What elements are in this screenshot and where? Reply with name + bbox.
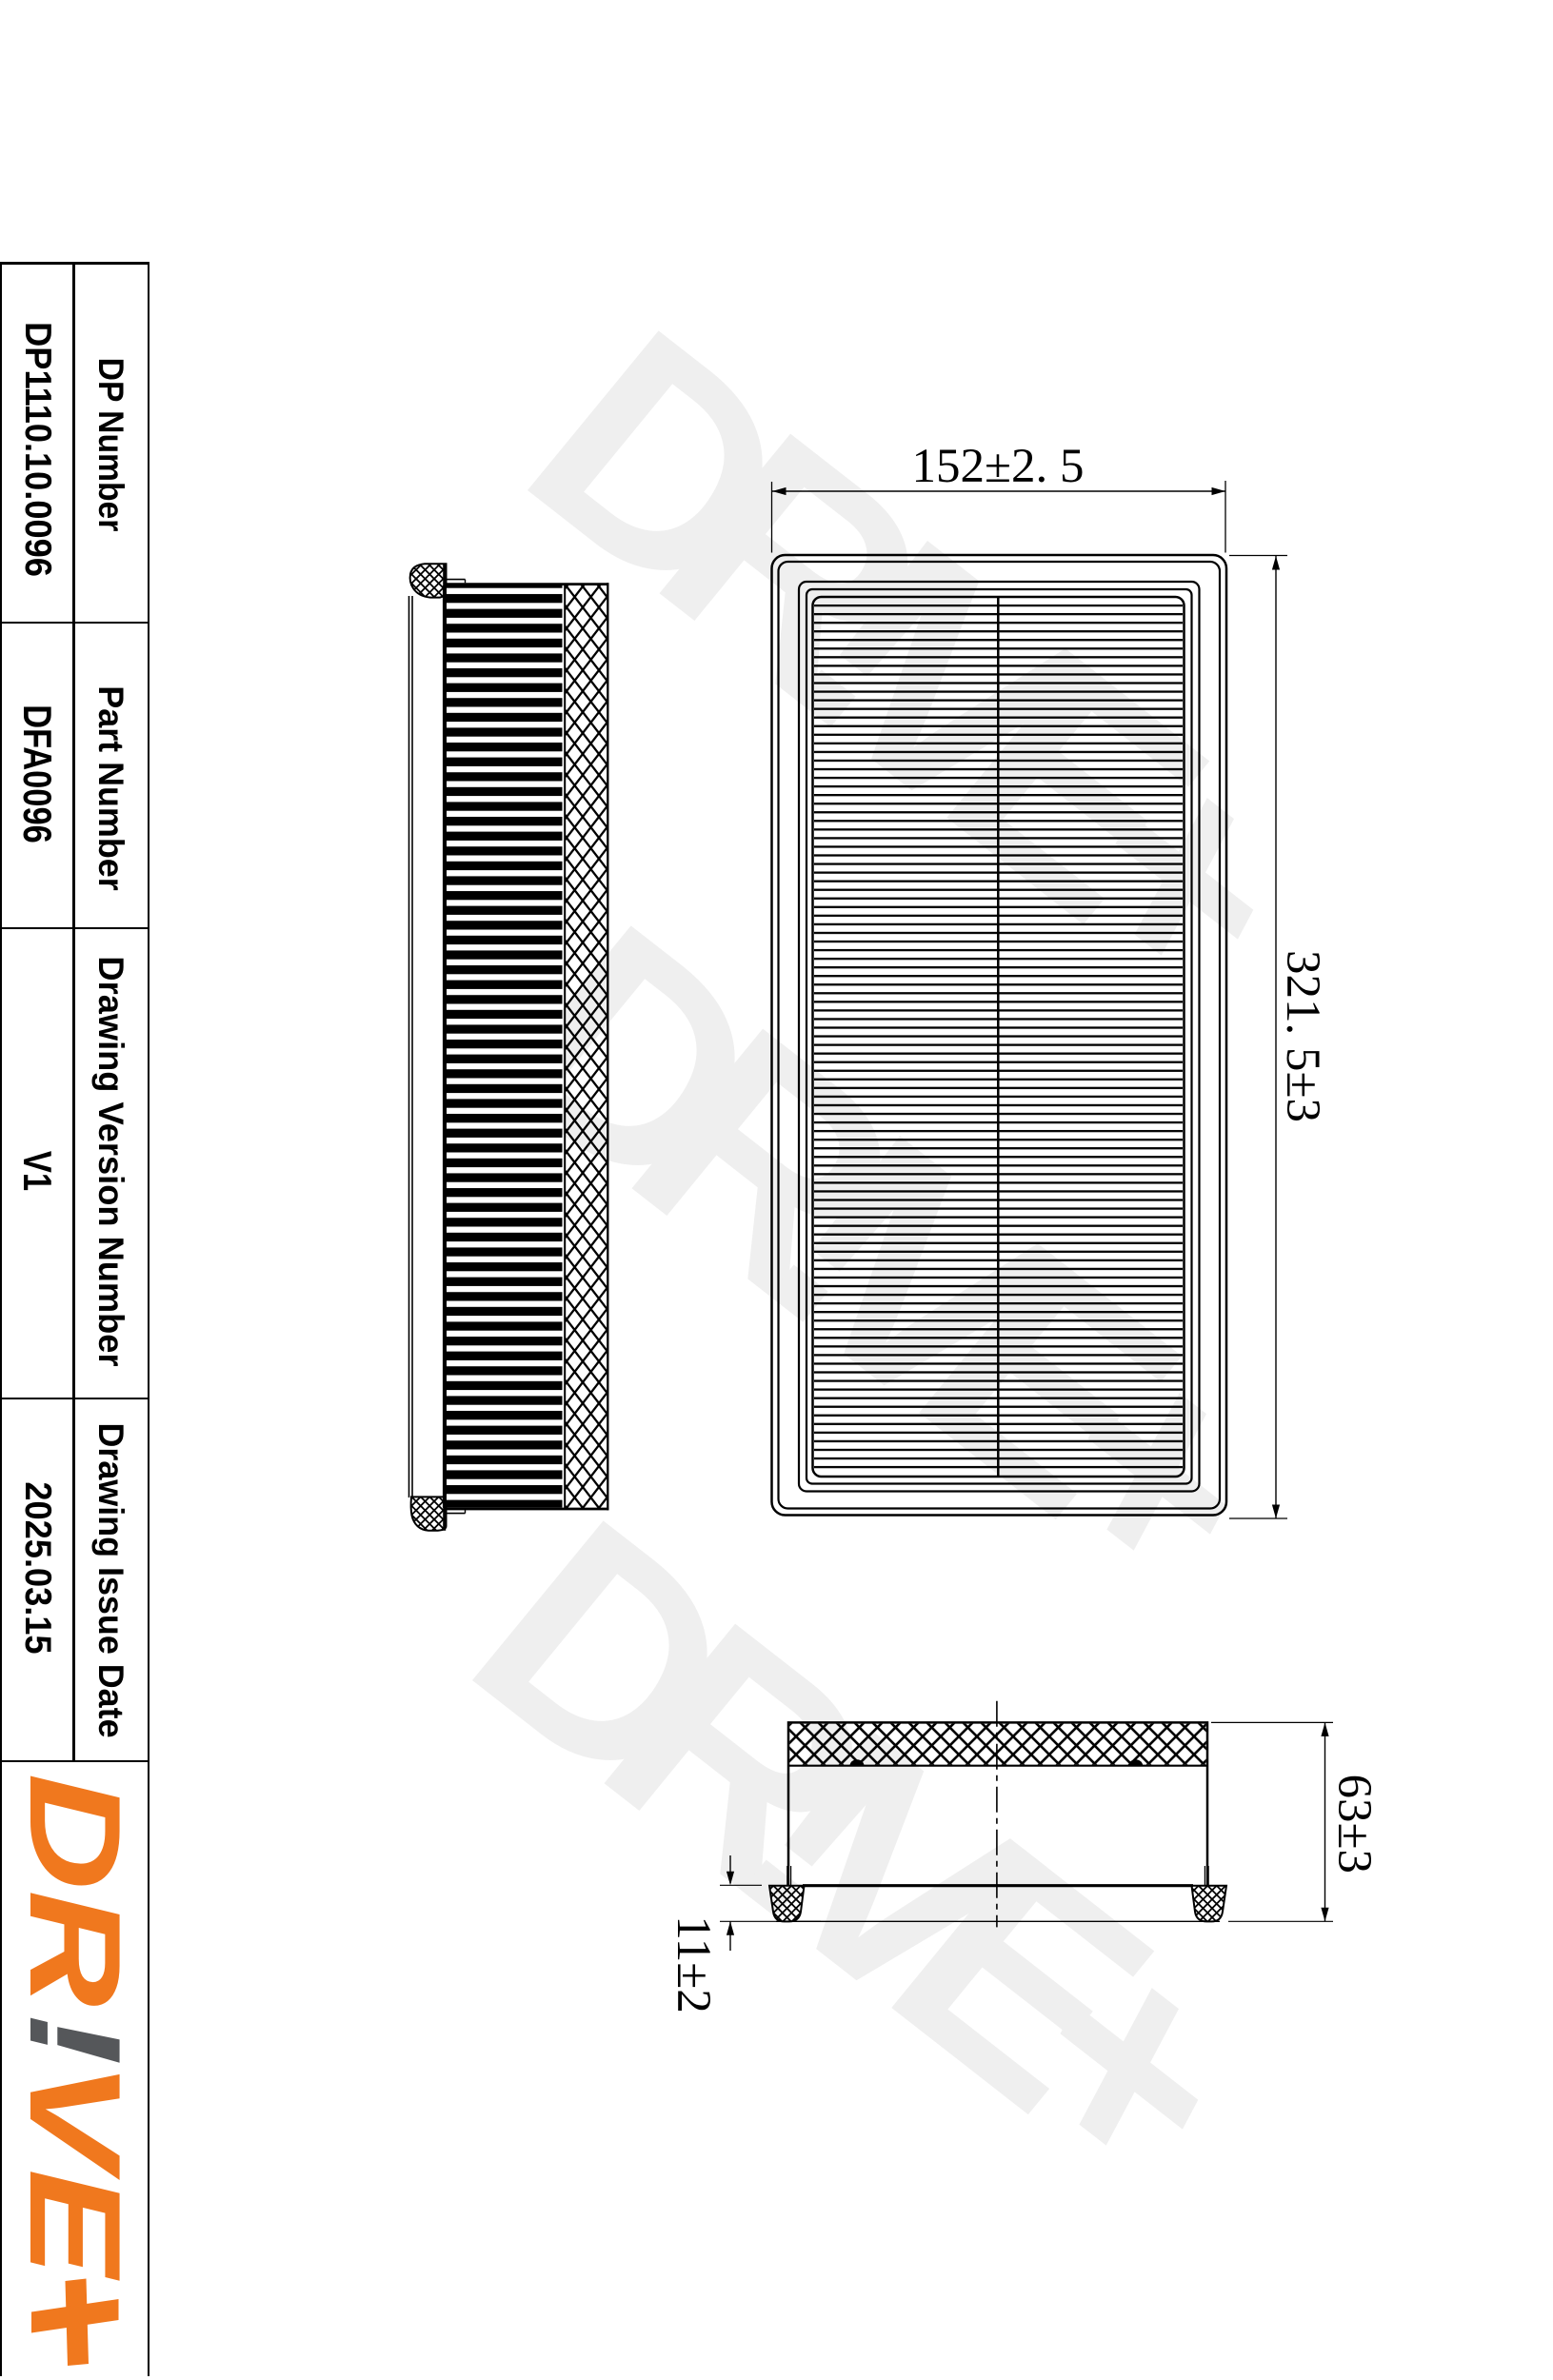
svg-text:321. 5±3: 321. 5±3 [1276,950,1329,1122]
svg-text:152±2. 5: 152±2. 5 [912,440,1085,493]
svg-text:11±2: 11±2 [667,1915,720,2013]
svg-text:63±3: 63±3 [1327,1774,1381,1874]
